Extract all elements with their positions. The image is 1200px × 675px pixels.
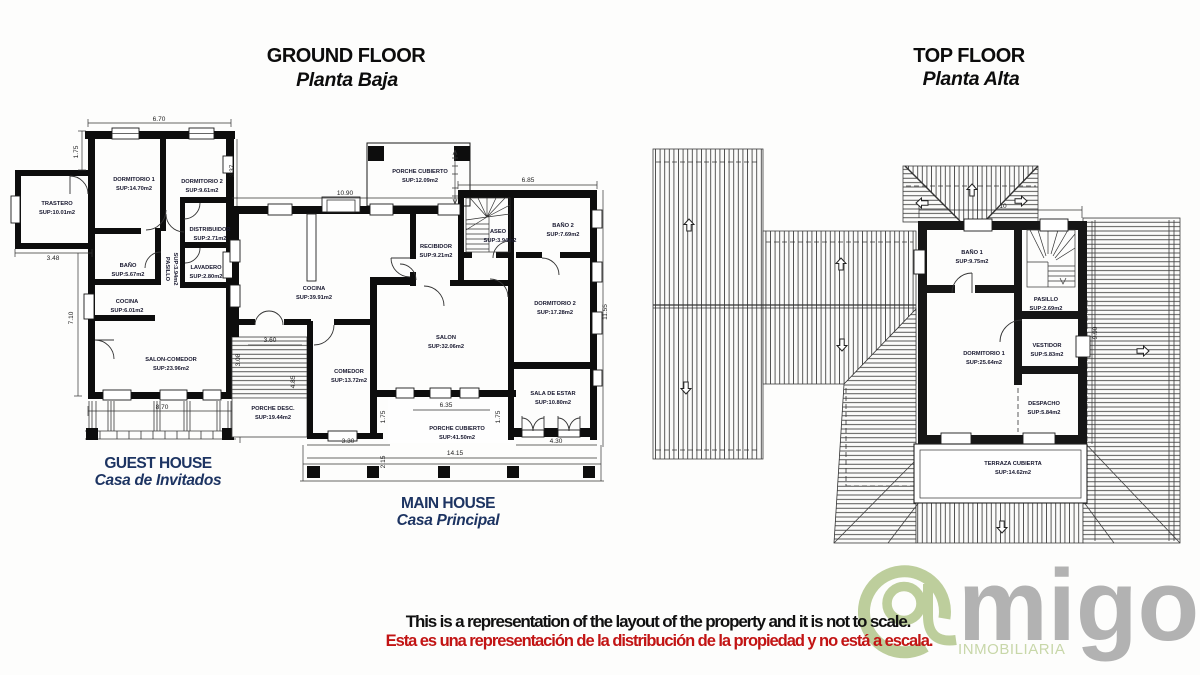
svg-text:SUP:41.50m2: SUP:41.50m2 — [439, 435, 475, 441]
svg-text:3.60: 3.60 — [264, 337, 277, 344]
svg-text:9.90: 9.90 — [1092, 326, 1099, 339]
svg-text:SUP:32.06m2: SUP:32.06m2 — [428, 344, 464, 350]
svg-text:SUP:5.83m2: SUP:5.83m2 — [1031, 352, 1064, 358]
svg-text:This is a representation of th: This is a representation of the layout o… — [406, 612, 911, 631]
svg-text:DORMITORIO 2: DORMITORIO 2 — [534, 301, 576, 307]
svg-text:SUP:2.69m2: SUP:2.69m2 — [1030, 306, 1063, 312]
svg-text:TERRAZA CUBIERTA: TERRAZA CUBIERTA — [984, 461, 1042, 467]
svg-text:10: 10 — [999, 203, 1007, 210]
svg-text:PORCHE CUBIERTO: PORCHE CUBIERTO — [429, 426, 485, 432]
svg-text:SUP:14.70m2: SUP:14.70m2 — [116, 186, 152, 192]
svg-text:SUP:9.61m2: SUP:9.61m2 — [186, 188, 219, 194]
svg-text:BAÑO: BAÑO — [120, 262, 137, 269]
svg-text:SUP:14.62m2: SUP:14.62m2 — [995, 470, 1031, 476]
svg-text:SALON-COMEDOR: SALON-COMEDOR — [145, 357, 197, 363]
svg-text:COMEDOR: COMEDOR — [334, 369, 364, 375]
svg-text:4.85: 4.85 — [290, 375, 297, 388]
svg-text:SALA DE ESTAR: SALA DE ESTAR — [530, 391, 575, 397]
svg-text:10.90: 10.90 — [337, 190, 354, 197]
svg-text:SUP:39.91m2: SUP:39.91m2 — [296, 295, 332, 301]
svg-text:1.75: 1.75 — [73, 145, 80, 158]
svg-text:11.55: 11.55 — [602, 304, 609, 320]
svg-text:GROUND FLOOR: GROUND FLOOR — [267, 45, 426, 67]
svg-text:BAÑO 1: BAÑO 1 — [961, 249, 983, 256]
svg-text:SUP:19.44m2: SUP:19.44m2 — [255, 415, 291, 421]
svg-text:ASEO: ASEO — [490, 229, 507, 235]
svg-text:4.30: 4.30 — [550, 438, 563, 445]
svg-text:SUP:12.09m2: SUP:12.09m2 — [402, 178, 438, 184]
svg-text:DISTRIBUIDOR: DISTRIBUIDOR — [189, 227, 230, 233]
svg-text:DORMITORIO 2: DORMITORIO 2 — [181, 179, 223, 185]
svg-text:SUP:10.01m2: SUP:10.01m2 — [39, 210, 75, 216]
svg-text:1.75: 1.75 — [495, 410, 502, 423]
svg-text:6.85: 6.85 — [522, 177, 535, 184]
svg-text:TOP FLOOR: TOP FLOOR — [913, 45, 1025, 67]
svg-text:3.48: 3.48 — [47, 255, 60, 262]
svg-text:SUP:5.84m2: SUP:5.84m2 — [1028, 410, 1061, 416]
svg-text:SUP:3.94m2: SUP:3.94m2 — [484, 238, 517, 244]
svg-text:SUP:23.96m2: SUP:23.96m2 — [153, 366, 189, 372]
svg-text:SUP:2.80m2: SUP:2.80m2 — [190, 274, 223, 280]
svg-text:3.30: 3.30 — [342, 438, 355, 445]
svg-text:14.15: 14.15 — [447, 450, 464, 457]
svg-text:6.70: 6.70 — [153, 116, 166, 123]
svg-text:Casa Principal: Casa Principal — [397, 512, 501, 529]
svg-text:3.08: 3.08 — [235, 353, 242, 366]
svg-text:DORMITORIO 1: DORMITORIO 1 — [963, 351, 1005, 357]
svg-text:TRASTERO: TRASTERO — [41, 201, 73, 207]
svg-text:DESPACHO: DESPACHO — [1028, 401, 1060, 407]
svg-text:SUP:10.80m2: SUP:10.80m2 — [535, 400, 571, 406]
svg-text:SALON: SALON — [436, 335, 456, 341]
svg-text:BAÑO 2: BAÑO 2 — [552, 222, 574, 229]
svg-text:8.70: 8.70 — [156, 404, 169, 411]
svg-text:Planta Alta: Planta Alta — [923, 68, 1020, 90]
svg-text:COCINA: COCINA — [303, 286, 325, 292]
svg-text:PASILLO: PASILLO — [1034, 297, 1059, 303]
svg-text:COCINA: COCINA — [116, 299, 138, 305]
svg-text:7.10: 7.10 — [68, 311, 75, 324]
svg-text:LAVADERO: LAVADERO — [190, 265, 222, 271]
svg-text:RECIBIDOR: RECIBIDOR — [420, 244, 452, 250]
svg-text:PORCHE CUBIERTO: PORCHE CUBIERTO — [392, 169, 448, 175]
svg-text:MAIN HOUSE: MAIN HOUSE — [401, 495, 495, 512]
svg-text:6.35: 6.35 — [440, 402, 453, 409]
svg-text:Planta Baja: Planta Baja — [296, 69, 398, 91]
svg-text:1.75: 1.75 — [380, 410, 387, 423]
svg-text:PORCHE DESC.: PORCHE DESC. — [251, 406, 295, 412]
svg-text:3.37: 3.37 — [229, 164, 236, 177]
svg-text:SUP:7.69m2: SUP:7.69m2 — [547, 232, 580, 238]
svg-text:SUP:9.21m2: SUP:9.21m2 — [420, 253, 453, 259]
svg-text:SUP:6.01m2: SUP:6.01m2 — [111, 308, 144, 314]
svg-text:DORMITORIO 1: DORMITORIO 1 — [113, 177, 155, 183]
svg-text:SUP:17.28m2: SUP:17.28m2 — [537, 310, 573, 316]
svg-text:Esta es una representación de: Esta es una representación de la distrib… — [386, 632, 933, 650]
svg-text:GUEST HOUSE: GUEST HOUSE — [104, 455, 211, 472]
svg-text:2.15: 2.15 — [380, 455, 387, 468]
svg-text:SUP:13.72m2: SUP:13.72m2 — [331, 378, 367, 384]
svg-text:SUP:9.75m2: SUP:9.75m2 — [956, 259, 989, 265]
svg-text:PASILLO: PASILLO — [164, 257, 170, 282]
svg-text:SUP:2.71m2: SUP:2.71m2 — [194, 236, 227, 242]
svg-text:SUP:5.67m2: SUP:5.67m2 — [112, 272, 145, 278]
svg-text:SUP:3.94m2: SUP:3.94m2 — [172, 253, 178, 286]
svg-text:SUP:25.64m2: SUP:25.64m2 — [966, 360, 1002, 366]
svg-text:Casa de Invitados: Casa de Invitados — [95, 472, 222, 489]
svg-text:INMOBILIARIA: INMOBILIARIA — [958, 641, 1065, 658]
svg-text:VESTIDOR: VESTIDOR — [1032, 343, 1061, 349]
